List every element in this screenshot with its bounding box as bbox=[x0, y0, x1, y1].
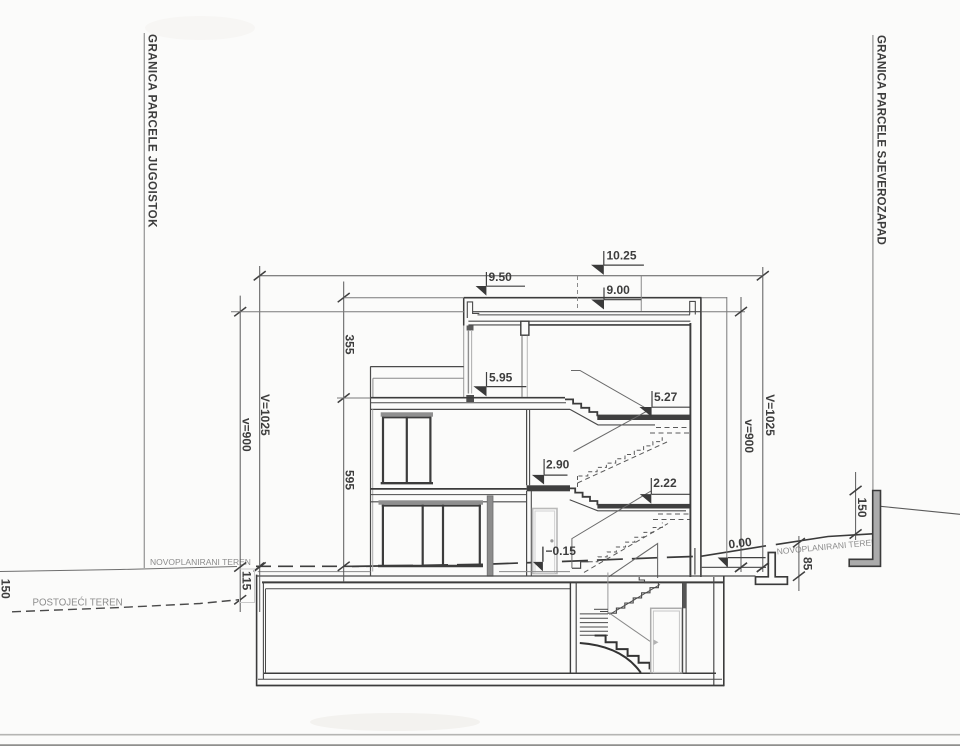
svg-text:0.00: 0.00 bbox=[728, 535, 753, 552]
svg-text:NOVOPLANIRANI TEREN: NOVOPLANIRANI TEREN bbox=[150, 557, 251, 567]
svg-text:10.25: 10.25 bbox=[607, 249, 637, 263]
svg-text:GRANICA PARCELE SJEVEROZAPAD: GRANICA PARCELE SJEVEROZAPAD bbox=[875, 35, 888, 245]
svg-text:v=900: v=900 bbox=[240, 418, 254, 452]
svg-text:595: 595 bbox=[343, 470, 357, 490]
svg-text:5.27: 5.27 bbox=[654, 390, 678, 404]
svg-text:150: 150 bbox=[855, 498, 869, 518]
svg-text:115: 115 bbox=[240, 571, 254, 591]
svg-text:355: 355 bbox=[343, 335, 357, 355]
svg-text:9.00: 9.00 bbox=[607, 283, 631, 297]
svg-text:v=900: v=900 bbox=[742, 419, 756, 453]
svg-text:9.50: 9.50 bbox=[489, 270, 513, 284]
svg-text:85: 85 bbox=[801, 557, 815, 571]
svg-text:150: 150 bbox=[0, 579, 13, 599]
svg-text:5.95: 5.95 bbox=[489, 371, 513, 385]
svg-text:2.22: 2.22 bbox=[653, 476, 677, 490]
svg-text:POSTOJEĆI TEREN: POSTOJEĆI TEREN bbox=[33, 598, 123, 609]
svg-text:2.90: 2.90 bbox=[546, 458, 570, 472]
svg-text:V=1025: V=1025 bbox=[258, 394, 272, 436]
svg-text:−0.15: −0.15 bbox=[546, 544, 577, 558]
svg-text:V=1025: V=1025 bbox=[763, 394, 777, 436]
svg-text:GRANICA PARCELE JUGOISTOK: GRANICA PARCELE JUGOISTOK bbox=[146, 34, 159, 228]
